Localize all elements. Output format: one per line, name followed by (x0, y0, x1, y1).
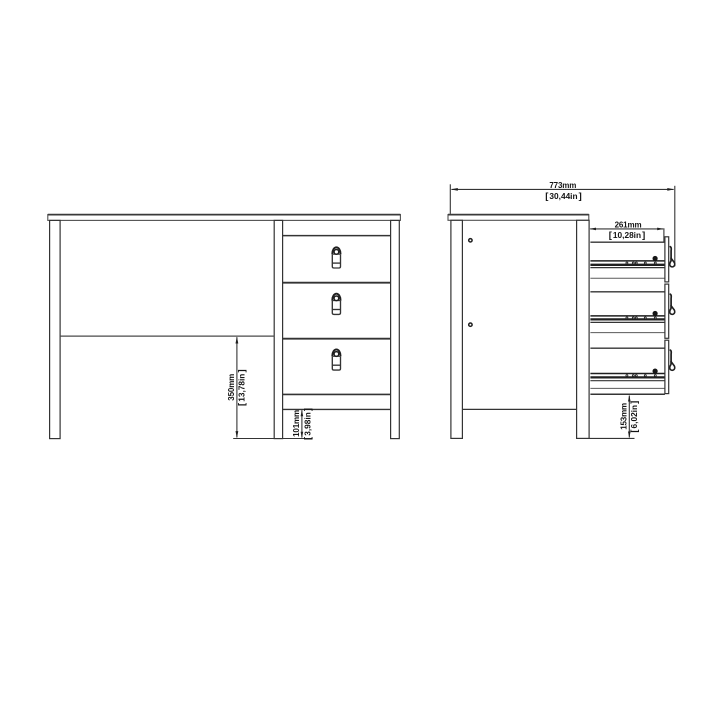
svg-text:261mm: 261mm (615, 220, 642, 229)
svg-text:[30,44in]: [30,44in] (545, 190, 582, 201)
svg-text:350mm: 350mm (227, 374, 236, 401)
svg-text:[3,98in]: [3,98in] (302, 408, 313, 440)
svg-text:[13,78in]: [13,78in] (236, 369, 247, 406)
svg-text:[10,28in]: [10,28in] (609, 229, 646, 240)
svg-text:153mm: 153mm (620, 403, 629, 430)
svg-text:[6,02in]: [6,02in] (628, 401, 639, 433)
svg-text:773mm: 773mm (549, 181, 576, 190)
svg-text:101mm: 101mm (292, 410, 301, 437)
